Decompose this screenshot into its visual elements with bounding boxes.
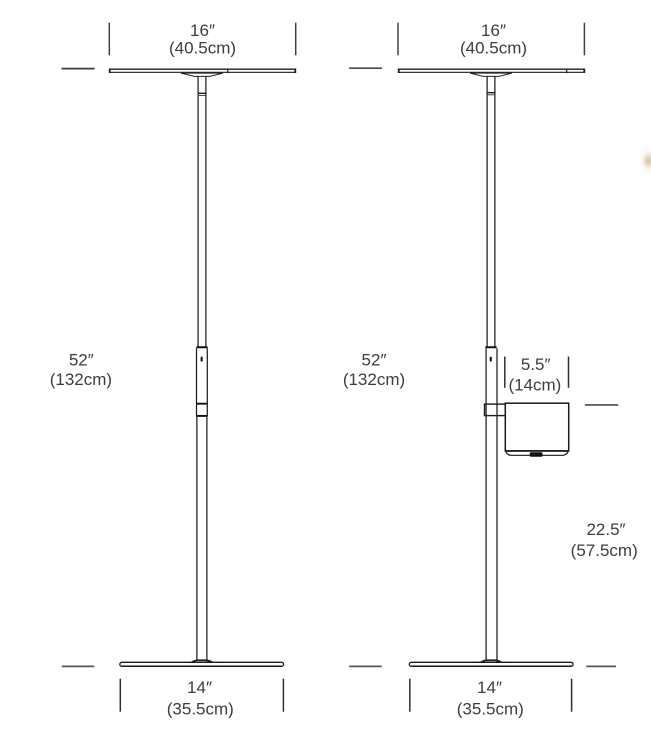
svg-text:14″: 14″ bbox=[477, 678, 502, 697]
svg-text:(132cm): (132cm) bbox=[50, 370, 112, 389]
svg-text:(132cm): (132cm) bbox=[343, 370, 405, 389]
svg-text:(35.5cm): (35.5cm) bbox=[167, 700, 234, 719]
svg-text:(40.5cm): (40.5cm) bbox=[460, 39, 527, 58]
svg-text:52″: 52″ bbox=[362, 351, 387, 370]
svg-text:16″: 16″ bbox=[481, 21, 506, 40]
svg-text:(40.5cm): (40.5cm) bbox=[169, 39, 236, 58]
svg-text:(14cm): (14cm) bbox=[508, 376, 561, 395]
svg-text:52″: 52″ bbox=[69, 351, 94, 370]
svg-text:22.5″: 22.5″ bbox=[586, 520, 625, 539]
svg-text:(35.5cm): (35.5cm) bbox=[457, 700, 524, 719]
svg-text:5.5″: 5.5″ bbox=[521, 355, 551, 374]
svg-text:(57.5cm): (57.5cm) bbox=[571, 541, 638, 560]
svg-text:14″: 14″ bbox=[187, 678, 212, 697]
svg-text:16″: 16″ bbox=[190, 21, 215, 40]
